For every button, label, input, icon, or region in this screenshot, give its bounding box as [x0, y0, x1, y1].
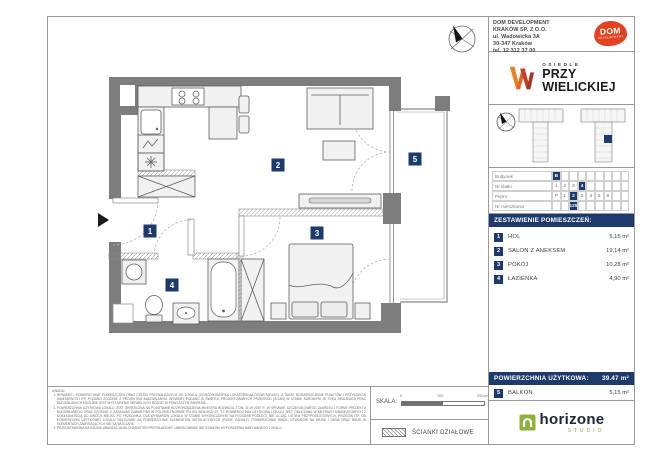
room-row: 2SALON Z ANEKSEM19,14 m² [489, 244, 634, 258]
plan-room-number: 5 [413, 155, 418, 164]
plan-room-number: 1 [148, 227, 153, 236]
hall-wardrobe [138, 176, 195, 197]
room-number-badge: 3 [494, 261, 503, 270]
hatch-swatch [382, 428, 406, 437]
unit-table-cell: 5 [595, 191, 604, 201]
unit-table-row: Nr klatki1234 [492, 181, 631, 191]
room-name: BALKON [508, 390, 609, 396]
washing-machine-icon [122, 260, 146, 284]
room-area: 19,14 m² [606, 248, 629, 254]
room-name: POKÓJ [508, 262, 606, 268]
unit-table-row-label: Budynek [492, 171, 552, 181]
unit-table-cell [621, 201, 630, 211]
scale-tick-end: 200cm [477, 394, 488, 398]
room-number-badge: 5 [494, 389, 503, 398]
developer-phone: tel. 12 312 37 00 [493, 48, 634, 55]
plan-room-number: 4 [170, 281, 175, 290]
plan-room-number: 3 [315, 229, 320, 238]
usable-area-bar: POWIERZCHNIA UŻYTKOWA: 39.47 m² [489, 372, 634, 385]
room-number-badge: 2 [494, 247, 503, 256]
partition-legend-label: ŚCIANKI DZIAŁOWE [412, 430, 474, 436]
plan-room-number: 2 [276, 161, 281, 170]
estate-name: OSIEDLE PRZY WIELICKIEJ [542, 62, 616, 94]
scale-column: SKALA: 0 100 200cm ŚCIANKI DZIAŁOWE [370, 387, 488, 445]
horizone-logo-icon [519, 414, 536, 431]
usable-area-label: POWIERZCHNIA UŻYTKOWA: [494, 375, 589, 382]
unit-table-cell [612, 191, 621, 201]
unit-table-row: Nr mieszkania125 [492, 201, 631, 211]
balcony-row: 5BALKON5,15 m² [489, 386, 634, 400]
developer-block: DOM DEVELOPMENT KRAKÓW SP. Z O.O. ul. Wa… [489, 17, 634, 52]
studio-logo-block: horizone STUDIO [489, 400, 634, 444]
nightstand-right [355, 303, 370, 319]
unit-table-cell: 4 [586, 191, 595, 201]
scale-bar [401, 401, 485, 406]
room-schedule-header: ZESTAWIENIE POMIESZCZEŃ: [489, 214, 634, 227]
room-name: ŁAZIENKA [508, 276, 609, 282]
scale-label: SKALA: [376, 399, 397, 405]
przy-wielickiej-logo [507, 63, 535, 93]
unit-table-row-label: Piętro [492, 191, 552, 201]
room-row: 5BALKON5,15 m² [489, 386, 634, 400]
unit-table-cell: 6 [604, 191, 613, 201]
unit-table-row-label: Nr klatki [492, 181, 552, 191]
sink-icon [141, 110, 161, 134]
coffee-table [323, 141, 355, 160]
unit-table-cell: B [552, 171, 561, 181]
disclaimer-text: UWAGA: WYMIARY I POWIERZCHNIE POMIESZCZE… [52, 389, 366, 431]
unit-table-cell: 1 [561, 191, 570, 201]
room-area: 5,15 m² [609, 234, 629, 240]
room-number-badge: 4 [494, 275, 503, 284]
balcony-railing [394, 109, 447, 302]
usable-area-bar-wrap: POWIERZCHNIA UŻYTKOWA: 39.47 m² [489, 372, 634, 385]
toilet-icon [146, 296, 163, 323]
room-row: 3POKÓJ10,28 m² [489, 258, 634, 272]
sofa [307, 88, 373, 129]
usable-area-value: 39.47 m² [602, 375, 629, 382]
unit-table-cell [612, 171, 621, 181]
unit-table-cell: 125 [569, 201, 578, 211]
unit-table-cell [612, 181, 621, 191]
building-location-block [489, 105, 634, 168]
unit-table-cell: 1 [552, 181, 561, 191]
unit-table-cell [595, 181, 604, 191]
floor-plan-drawing: 12345 [48, 17, 488, 386]
plan-sheet: 12345 DOM DEVELOPMENT KRAKÓW SP. Z O.O. … [47, 16, 635, 445]
room-area: 10,28 m² [606, 262, 629, 268]
unit-table-row-label: Nr mieszkania [492, 201, 552, 211]
unit-table-cell [569, 171, 578, 181]
room-number-badge: 1 [494, 233, 503, 242]
shaft-niche [120, 85, 135, 106]
washbasin-icon [173, 303, 199, 324]
unit-table-cell [621, 181, 630, 191]
scale-tick-start: 0 [400, 394, 402, 398]
unit-table-cell: 2 [569, 191, 578, 201]
unit-table-cell [604, 201, 613, 211]
scale-block: SKALA: 0 100 200cm [371, 387, 488, 420]
room-list: 1HOL5,15 m²2SALON Z ANEKSEM19,14 m²3POKÓ… [489, 227, 634, 286]
unit-table-cell [595, 201, 604, 211]
entrance-arrow-icon [98, 213, 109, 227]
bathtub-icon [208, 259, 239, 321]
unit-table-cell [578, 171, 587, 181]
building-b-thumbnail [581, 109, 625, 162]
footer: UWAGA: WYMIARY I POWIERZCHNIE POMIESZCZE… [48, 386, 488, 444]
building-a-thumbnail [519, 109, 563, 162]
room-area: 4,90 m² [609, 276, 629, 282]
room-name: HOL [508, 234, 609, 240]
room-name: SALON Z ANEKSEM [508, 248, 606, 254]
unit-table-cell [586, 181, 595, 191]
unit-table-cell [586, 201, 595, 211]
unit-table-cell: 2 [561, 181, 570, 191]
bed [289, 244, 353, 319]
scale-tick-mid: 100 [437, 394, 443, 398]
unit-table-cell [578, 201, 587, 211]
north-arrow-icon [449, 26, 475, 53]
unit-table-cell: P [552, 191, 561, 201]
building-plan-thumbnails [517, 107, 635, 165]
unit-table-cell [561, 171, 570, 181]
unit-table-cell: 3 [578, 191, 587, 201]
room-row: 1HOL5,15 m² [489, 230, 634, 244]
estate-brand-block: OSIEDLE PRZY WIELICKIEJ [489, 52, 634, 105]
tv-cabinet [299, 194, 381, 208]
compass-icon [493, 108, 519, 136]
unit-table-cell [586, 171, 595, 181]
room-area: 5,15 m² [609, 390, 629, 396]
unit-table-row: BudynekB [492, 171, 631, 181]
stove-icon [172, 88, 204, 105]
unit-table-cell: 4 [578, 181, 587, 191]
room-row: 4ŁAZIENKA4,90 m² [489, 272, 634, 286]
unit-table-cell [595, 171, 604, 181]
unit-table-cell [604, 181, 613, 191]
unit-table-cell [621, 191, 630, 201]
unit-location-table: BudynekBNr klatki1234PiętroP123456Nr mie… [489, 168, 634, 214]
bedroom-wardrobe [241, 259, 264, 321]
unit-table-cell [604, 171, 613, 181]
unit-table-cell [552, 201, 561, 211]
partition-legend: ŚCIANKI DZIAŁOWE [371, 420, 488, 445]
unit-table-cell: 3 [569, 181, 578, 191]
info-panel: DOM DEVELOPMENT KRAKÓW SP. Z O.O. ul. Wa… [488, 17, 634, 444]
unit-table-cell [561, 201, 570, 211]
unit-table-cell [612, 201, 621, 211]
highlighted-unit [604, 135, 612, 143]
nightstand-left [271, 303, 286, 319]
unit-table-row: PiętroP123456 [492, 191, 631, 201]
studio-logo-text: horizone STUDIO [540, 412, 605, 434]
meter-cabinet [113, 304, 133, 323]
unit-table-cell [621, 171, 630, 181]
